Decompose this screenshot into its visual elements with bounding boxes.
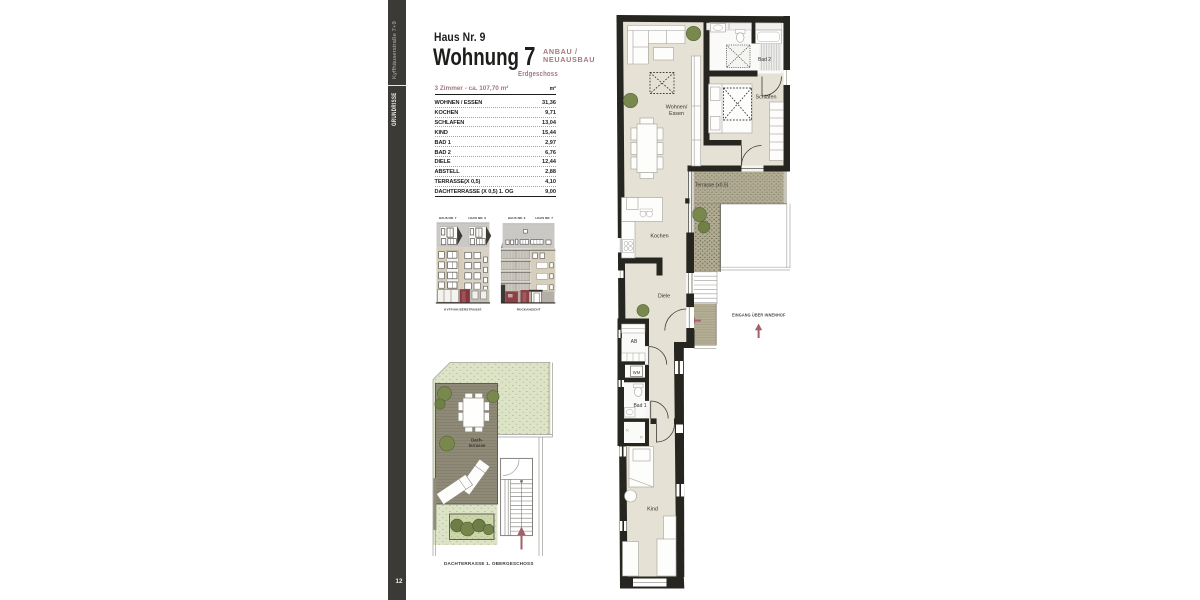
svg-text:HAUS NR. 9: HAUS NR. 9 [508,216,526,220]
svg-text:RÜCKANSICHT: RÜCKANSICHT [517,307,541,311]
svg-text:Essen: Essen [669,111,684,117]
svg-text:KYFFHÄUSERSTRASSE: KYFFHÄUSERSTRASSE [444,307,481,311]
svg-text:AB: AB [631,339,638,345]
svg-text:HAUS NR. 7: HAUS NR. 7 [535,216,553,220]
svg-text:Kochen: Kochen [650,234,668,240]
svg-text:Bad 2: Bad 2 [758,57,771,63]
svg-text:Schlafen: Schlafen [756,95,777,101]
svg-text:Kind: Kind [647,507,658,513]
svg-text:HAUS NR. 7: HAUS NR. 7 [439,216,457,220]
svg-text:EINGANG ÜBER INNENHOF: EINGANG ÜBER INNENHOF [732,312,786,318]
svg-text:Terrasse (x0,5): Terrasse (x0,5) [695,183,729,189]
svg-text:terrasse: terrasse [469,443,486,448]
svg-text:Diele: Diele [658,294,670,300]
svg-text:Bad 1: Bad 1 [633,403,646,409]
svg-text:WM: WM [633,370,641,375]
svg-text:Dach-: Dach- [471,438,484,443]
svg-text:Wohnen/: Wohnen/ [666,105,688,111]
svg-text:HAUS NR. 9: HAUS NR. 9 [468,216,486,220]
svg-text:DACHTERRASSE 1. OBERGESCHOSS: DACHTERRASSE 1. OBERGESCHOSS [444,561,534,566]
